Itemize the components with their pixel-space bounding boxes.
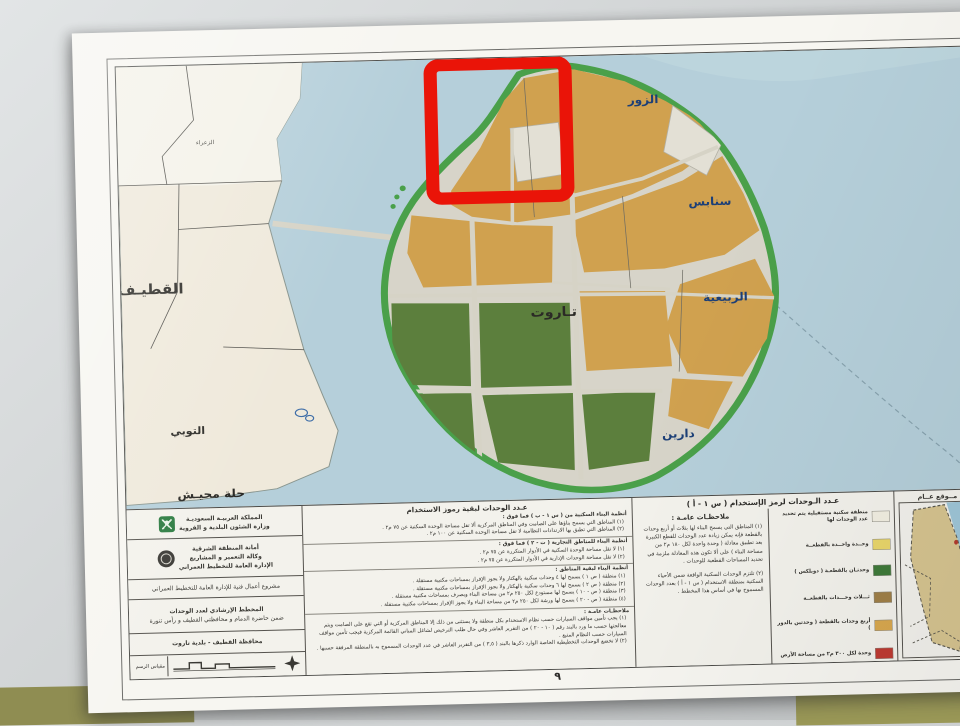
other-codes-section-general-notes: ملاحظـات عامـة : (١) يجب تأمين مواقف الس… <box>305 606 635 674</box>
screenshot-root: { "photo": { "background_color": "#d3d6d… <box>0 0 960 720</box>
plan-text: المخطط الإرشادي لعدد الوحدات ضمن حاضرة ا… <box>149 604 284 625</box>
legend-entry: وحدتـان بالقطعـة ( دوبلكس ) <box>774 565 891 579</box>
label-tarout: تـاروت <box>530 304 577 321</box>
label-altubi: التوبي <box>170 424 205 437</box>
mainland-north-district <box>116 63 305 188</box>
legend-entry: أربع وحدات بالقطعة ( وحدتين بالدور ) <box>775 618 892 635</box>
label-sanabis: سنابس <box>688 194 731 209</box>
code-s1a-body: منطقة سكنية مستقبلية يتم تحديد عدد الوحد… <box>633 506 898 667</box>
color-swatch <box>872 538 890 549</box>
scale-bar <box>171 657 281 674</box>
label-alzour: الزور <box>627 92 659 107</box>
map-sheet-paper: القطيـف التوبي حلة محيـش الزعراء الزور س… <box>72 11 960 714</box>
color-swatch <box>873 565 891 576</box>
legend-strip: المملكة العربيـة السعوديـة وزارة الشئون … <box>126 488 960 679</box>
north-arrow-icon <box>284 655 300 671</box>
kingdom-text: المملكة العربيـة السعوديـة وزارة الشئون … <box>179 512 270 532</box>
notes-title: ملاحظـات عامـة : <box>639 511 762 524</box>
legend-entry-label: وحدة لكل ٣٠٠ م٢ من مساحة الأرض <box>780 650 871 659</box>
code-s1a-column: عـدد الـوحدات لرمز الإستخدام ( س ١ - أ )… <box>632 492 898 667</box>
legend-entry-label: وحدتـان بالقطعـة ( دوبلكس ) <box>794 567 869 576</box>
title-block: المملكة العربيـة السعوديـة وزارة الشئون … <box>126 506 306 679</box>
scale-bar-label: مقياس الرسم <box>136 656 169 677</box>
legend-entry-label: ثـــلاث وحـــدات بالقطعــة <box>803 594 870 603</box>
color-swatch <box>872 510 890 521</box>
other-codes-column: عـدد الوحدات لبقية رموز الاستخدام أنظمة … <box>302 498 636 675</box>
ministry-line2: وزارة الشئون البلدية و القروية <box>179 521 270 532</box>
title-block-row-plan: المخطط الإرشادي لعدد الوحدات ضمن حاضرة ا… <box>129 596 305 634</box>
legend-entry-label: وحــدة واحــدة بالقطعــة <box>806 541 869 550</box>
color-swatch <box>874 591 892 602</box>
label-alrabiyah: الربيعية <box>703 290 748 306</box>
label-alzara: الزعراء <box>196 140 215 146</box>
color-swatch <box>875 648 893 659</box>
amana-text: أمانة المنطقة الشرقية وكالة التعمير و ال… <box>178 543 273 572</box>
inset-map-graphic <box>900 502 960 658</box>
label-hillat-muhaish: حلة محيـش <box>177 486 245 501</box>
municipality-text: محافظة القطيف - بلدية تاروت <box>172 637 263 648</box>
project-text: مشروع أعمال فنية للإدارة العامة للتخطيط … <box>152 582 280 594</box>
note-2: (٢) تلتزم الوحدات السكنية الواقعة ضمن ال… <box>640 569 764 596</box>
legend-entry: وحدة لكل ٣٠٠ م٢ من مساحة الأرض <box>776 648 893 662</box>
label-qatif: القطيـف <box>118 281 184 299</box>
label-darin: دارين <box>662 426 695 441</box>
amana-line3: الإدارة العامة للتخطيط العمراني <box>179 561 273 572</box>
map-canvas: القطيـف التوبي حلة محيـش الزعراء الزور س… <box>116 47 960 510</box>
legend-entry: وحــدة واحــدة بالقطعــة <box>773 538 890 552</box>
inner-map-frame: القطيـف التوبي حلة محيـش الزعراء الزور س… <box>115 46 960 681</box>
inset-map <box>899 500 960 658</box>
title-block-row-kingdom: المملكة العربيـة السعوديـة وزارة الشئون … <box>126 506 302 540</box>
tarout-island-map: القطيـف التوبي حلة محيـش الزعراء الزور س… <box>116 47 960 510</box>
inset-location-column: مــوقع عــام <box>894 489 960 660</box>
title-block-row-amana: أمانة المنطقة الشرقية وكالة التعمير و ال… <box>127 536 303 580</box>
unit-legend: منطقة سكنية مستقبلية يتم تحديد عدد الوحد… <box>768 506 898 664</box>
amana-seal-icon <box>157 550 174 567</box>
legend-entry-label: منطقة سكنية مستقبلية يتم تحديد عدد الوحد… <box>773 509 868 525</box>
legend-entry-label: أربع وحدات بالقطعة ( وحدتين بالدور ) <box>775 618 870 634</box>
saudi-emblem-icon <box>159 516 175 532</box>
legend-entry: منطقة سكنية مستقبلية يتم تحديد عدد الوحد… <box>773 509 890 526</box>
code-s1a-notes: ملاحظـات عامـة : (١) المناطق التي يسمح ا… <box>633 509 772 667</box>
title-block-row-scale: مقياس الرسم <box>130 652 305 678</box>
legend-entry: ثـــلاث وحـــدات بالقطعــة <box>775 591 892 605</box>
color-swatch <box>874 619 892 630</box>
note-1: (١) المناطق التي يسمح البناء لها بثلاث أ… <box>639 523 763 567</box>
